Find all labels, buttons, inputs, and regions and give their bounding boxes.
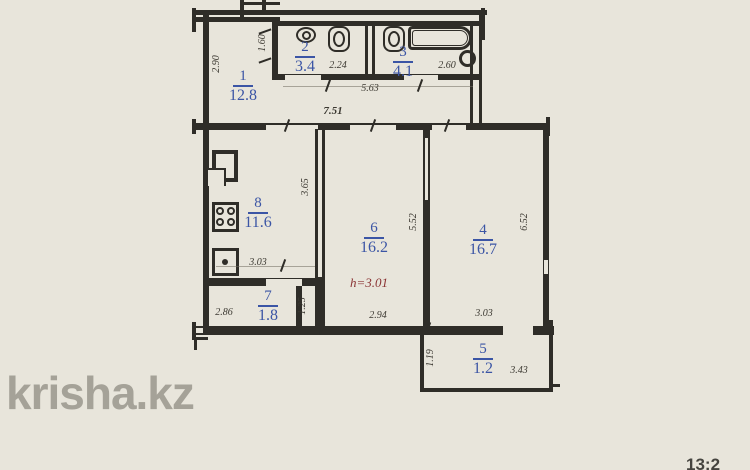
kitchen-living-divider (322, 129, 325, 277)
room-label-7: 7 1.8 (244, 289, 292, 324)
dim-balcony-height: 1.19 (425, 338, 437, 378)
right-wall-window (544, 260, 548, 274)
right-outer-wall (543, 123, 549, 334)
room-number: 8 (234, 196, 282, 211)
wc-sink-icon (333, 31, 345, 47)
room-label-4: 4 16.7 (459, 223, 507, 258)
dim-wc-width: 2.24 (316, 60, 360, 72)
balcony-door-opening (503, 325, 533, 336)
room-area: 1.8 (244, 308, 292, 324)
stove-burner-icon (216, 207, 224, 215)
foundation-tick (194, 340, 197, 350)
room-number: 6 (350, 221, 398, 236)
kitchen-bottom-wall (203, 278, 325, 286)
wc-door-opening (285, 75, 321, 80)
stove-burner-icon (216, 218, 224, 226)
balcony-bottom-wall (420, 388, 553, 392)
dim-storage-width: 2.86 (202, 307, 246, 319)
storage-window (217, 327, 280, 334)
balcony-left-wall (420, 334, 424, 392)
kitchen-sink-icon (222, 259, 228, 265)
dim-living-width: 2.94 (356, 310, 400, 322)
storage-door-opening (266, 279, 302, 286)
bedroom-door-opening (432, 125, 466, 130)
room-number: 7 (244, 289, 292, 304)
room-area: 12.8 (219, 88, 267, 104)
room-number: 3 (379, 45, 427, 60)
dim-hall-corridor-width: 5.63 (348, 83, 392, 95)
room-label-1: 1 12.8 (219, 69, 267, 104)
room-label-8: 8 11.6 (234, 196, 282, 231)
living-window (337, 327, 400, 334)
wall-cap (549, 320, 553, 334)
room-area: 4.1 (379, 64, 427, 80)
bedroom-window (443, 327, 503, 334)
room-area: 16.7 (459, 242, 507, 258)
room-number: 1 (219, 69, 267, 84)
wall-cap (192, 119, 196, 134)
clock-partial-text: 13:2 (686, 455, 720, 470)
wc-bath-divider-wall (372, 21, 375, 80)
wall-cap (552, 384, 560, 387)
room-number: 5 (459, 342, 507, 357)
dim-bedroom-width: 3.03 (462, 308, 506, 320)
room-area: 11.6 (234, 215, 282, 231)
dim-bedroom-height: 6.52 (519, 202, 531, 242)
bathtub-icon (412, 30, 468, 46)
dimension-line (283, 86, 473, 87)
room-number: 4 (459, 223, 507, 238)
right-wall-top (479, 15, 482, 123)
room-label-3: 3 4.1 (379, 45, 427, 80)
dimension-line (216, 266, 315, 267)
dim-storage-height: 1.25 (297, 286, 309, 326)
kitchen-door-opening (266, 125, 318, 130)
dim-kitchen-width: 3.03 (236, 257, 280, 269)
dim-total-width: 7.51 (311, 105, 355, 117)
dim-hall-left-height: 2.90 (211, 44, 223, 84)
dim-living-height: 5.52 (408, 202, 420, 242)
wall-core (425, 138, 428, 200)
dim-bath-width: 2.60 (425, 60, 469, 72)
floorplan-photo: 1 12.8 2 3.4 3 4.1 4 16.7 5 1.2 6 16.2 7… (0, 0, 750, 470)
kitchen-living-divider (315, 129, 318, 277)
wc-bath-divider-wall (365, 21, 368, 80)
counter-icon (208, 168, 226, 186)
bottom-wall (203, 326, 217, 335)
bottom-wall (280, 326, 337, 335)
hall-wc-divider-wall (272, 21, 278, 80)
krisha-watermark: krisha.kz (6, 366, 194, 420)
dim-kitchen-height: 3.65 (300, 167, 312, 207)
shaft-wall (240, 2, 280, 5)
dim-balcony-width: 3.43 (497, 365, 541, 377)
room-area: 16.2 (350, 240, 398, 256)
ceiling-height-note: h=3.01 (350, 275, 420, 291)
room-label-6: 6 16.2 (350, 221, 398, 256)
room-number: 2 (281, 40, 329, 55)
